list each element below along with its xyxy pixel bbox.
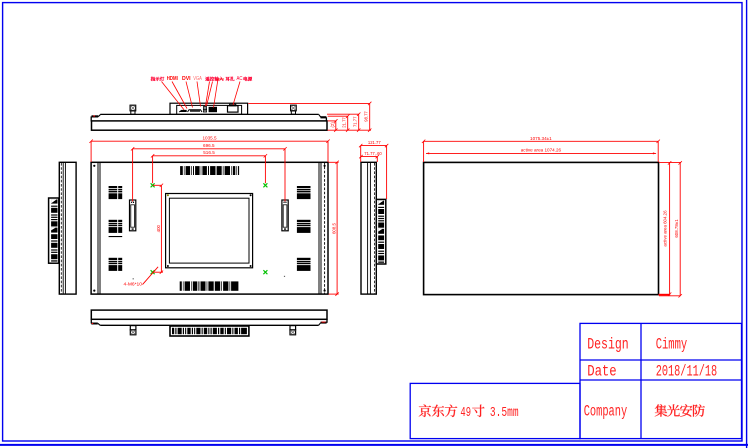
svg-text:1035.5: 1035.5 (202, 136, 216, 141)
svg-text:21.77: 21.77 (342, 117, 347, 128)
svg-text:HDMI: HDMI (167, 76, 178, 82)
svg-text:516.5: 516.5 (203, 150, 215, 155)
svg-text:Cimmy: Cimmy (656, 335, 688, 353)
svg-text:3.5mm: 3.5mm (490, 405, 519, 421)
svg-text:696.5: 696.5 (203, 143, 215, 148)
svg-text:1075.34±1: 1075.34±1 (530, 136, 552, 141)
svg-text:Date: Date (587, 363, 617, 381)
svg-text:121.77: 121.77 (368, 140, 381, 145)
svg-text:2018/11/18: 2018/11/18 (656, 363, 718, 381)
svg-text:active area 1074.26: active area 1074.26 (521, 148, 562, 153)
svg-text:VGA: VGA (193, 76, 202, 82)
svg-text:49: 49 (460, 405, 471, 421)
svg-text:Design: Design (587, 335, 629, 353)
svg-text:608.78±1: 608.78±1 (674, 219, 679, 238)
svg-text:71.77,.60: 71.77,.60 (364, 151, 382, 156)
svg-text:4-M6*10: 4-M6*10 (124, 281, 143, 286)
svg-text:AC: AC (237, 76, 243, 82)
svg-text:DVI: DVI (182, 76, 191, 82)
svg-text:active area 604.26: active area 604.26 (663, 210, 668, 247)
svg-text:Company: Company (584, 402, 628, 420)
svg-text:608.5: 608.5 (331, 222, 336, 234)
svg-text:71.77: 71.77 (353, 116, 358, 127)
svg-text:400: 400 (156, 224, 161, 232)
svg-text:98.77: 98.77 (364, 111, 369, 122)
